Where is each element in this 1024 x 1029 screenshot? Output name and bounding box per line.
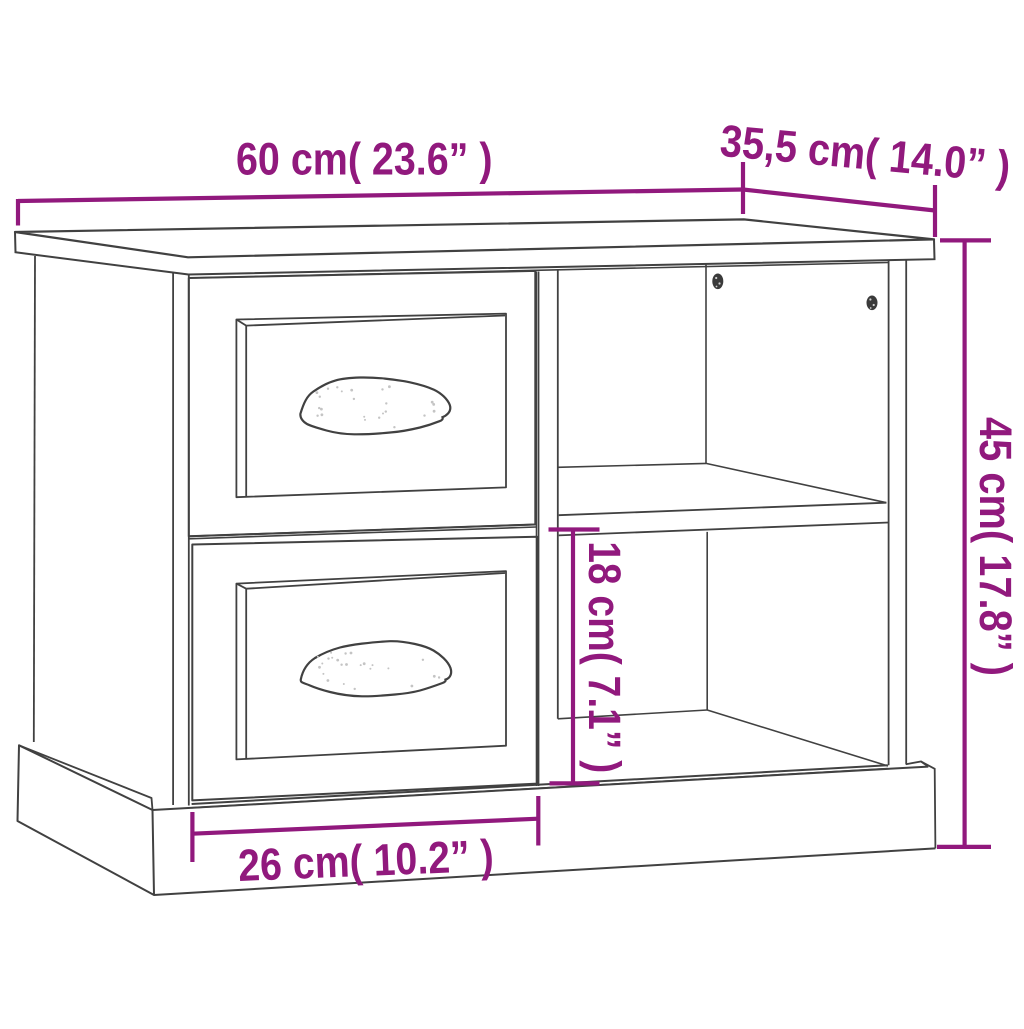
svg-text:45 cm( 17.8” ): 45 cm( 17.8” ) xyxy=(970,417,1021,676)
svg-text:26 cm( 10.2” ): 26 cm( 10.2” ) xyxy=(237,830,494,891)
svg-text:18 cm( 7.1” ): 18 cm( 7.1” ) xyxy=(579,541,630,773)
svg-text:60 cm( 23.6” ): 60 cm( 23.6” ) xyxy=(236,134,493,185)
